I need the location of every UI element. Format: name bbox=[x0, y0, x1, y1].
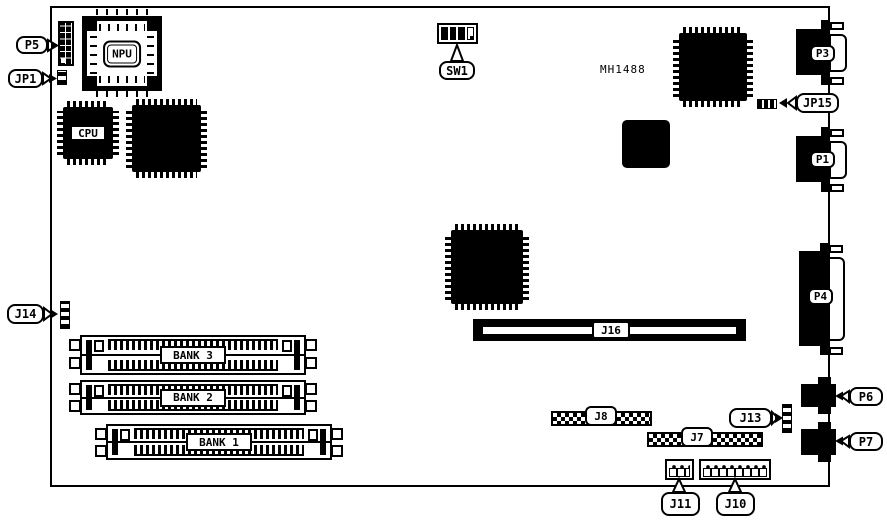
p7-callout: P7 bbox=[849, 432, 883, 451]
simm-clip bbox=[94, 340, 104, 352]
bank2-tab bbox=[305, 400, 317, 412]
p3-screw-tab bbox=[830, 22, 844, 30]
j14-callout: J14 bbox=[7, 304, 44, 324]
p5-power-connector bbox=[58, 21, 74, 66]
cpu-pins bbox=[112, 111, 119, 155]
bank3-tab bbox=[69, 357, 81, 369]
bank3-tab bbox=[69, 339, 81, 351]
jp15-callout: JP15 bbox=[796, 93, 839, 113]
jp15-jumper bbox=[757, 99, 777, 109]
bank2-label: BANK 2 bbox=[160, 389, 226, 407]
npu-corner-notch bbox=[87, 21, 97, 31]
sw1-callout: SW1 bbox=[439, 61, 475, 80]
chip-body bbox=[132, 105, 201, 172]
j14-header bbox=[60, 301, 70, 329]
npu-outer-ticks-top bbox=[96, 9, 148, 15]
npu-pin-ticks bbox=[99, 24, 145, 31]
p5-pin1-marker bbox=[61, 58, 66, 63]
chip-pins bbox=[200, 109, 207, 168]
bank1-tab bbox=[95, 445, 107, 457]
p6-arrowhead bbox=[835, 392, 843, 401]
sw1-switch-on bbox=[458, 27, 465, 40]
simm-clip bbox=[282, 385, 292, 397]
p7-jack bbox=[801, 429, 836, 455]
p1-screw-tab bbox=[830, 184, 844, 192]
j11-callout: J11 bbox=[661, 492, 700, 516]
p7-jack-stub bbox=[818, 422, 831, 430]
bank2-tab bbox=[69, 400, 81, 412]
chip-pins bbox=[136, 171, 197, 178]
p4-label: P4 bbox=[808, 288, 833, 305]
npu-outer-ticks-bottom bbox=[96, 91, 148, 97]
simm-end bbox=[86, 340, 92, 370]
p1-screw-nub bbox=[821, 182, 830, 192]
p3-screw-nub bbox=[821, 75, 830, 85]
chip-pins bbox=[455, 303, 519, 310]
p4-screw-tab bbox=[829, 245, 843, 253]
chip-pins bbox=[522, 234, 529, 300]
j10-connector bbox=[699, 459, 771, 480]
j7-label: J7 bbox=[681, 427, 713, 447]
simm-clip bbox=[308, 429, 318, 441]
p6-callout: P6 bbox=[849, 387, 883, 406]
p4-screw-nub bbox=[820, 345, 829, 355]
p3-label: P3 bbox=[810, 45, 835, 62]
npu-corner-notch bbox=[147, 76, 157, 86]
jp1-callout: JP1 bbox=[8, 69, 43, 88]
bank3-tab bbox=[305, 357, 317, 369]
bank3-label: BANK 3 bbox=[160, 346, 226, 364]
sw1-switch-on bbox=[450, 27, 457, 40]
p6-jack-stub bbox=[818, 406, 831, 414]
chip-body bbox=[451, 230, 523, 304]
npu-socket: NPU bbox=[82, 16, 162, 91]
p5-callout: P5 bbox=[16, 36, 48, 54]
p6-callout-tail bbox=[841, 391, 849, 402]
video-controller-chip bbox=[445, 224, 529, 310]
bank1-label: BANK 1 bbox=[186, 433, 252, 451]
bank3-simm-socket: BANK 3 bbox=[80, 335, 306, 375]
p1-screw-tab bbox=[830, 129, 844, 137]
p4-screw-tab bbox=[829, 347, 843, 355]
p3-screw-tab bbox=[830, 77, 844, 85]
chip-pins bbox=[746, 37, 753, 97]
cpu-label: CPU bbox=[70, 125, 106, 141]
bank2-tab bbox=[69, 383, 81, 395]
npu-pin-ticks bbox=[99, 76, 145, 83]
cpu-pins bbox=[67, 158, 109, 165]
cpu-chip: CPU bbox=[57, 101, 119, 165]
sw1-dip-switch bbox=[437, 23, 478, 44]
npu-corner-notch bbox=[147, 21, 157, 31]
simm-clip bbox=[282, 340, 292, 352]
j16-label: J16 bbox=[592, 321, 630, 339]
bank1-simm-socket: BANK 1 bbox=[106, 424, 332, 460]
sw1-switch-on bbox=[441, 27, 448, 40]
sw1-switch-off bbox=[467, 27, 474, 40]
plain-chip bbox=[622, 120, 670, 168]
j13-callout: J13 bbox=[729, 408, 772, 428]
j10-callout: J10 bbox=[716, 492, 755, 516]
bank3-tab bbox=[305, 339, 317, 351]
chip-body bbox=[679, 33, 747, 101]
npu-corner-notch bbox=[87, 76, 97, 86]
j11-sockets bbox=[669, 468, 690, 477]
j11-connector bbox=[665, 459, 694, 480]
simm-clip bbox=[94, 385, 104, 397]
p7-arrowhead bbox=[835, 437, 843, 446]
simm-end bbox=[320, 429, 326, 455]
npu-pin-ticks bbox=[90, 33, 97, 74]
mh1488-text: MH1488 bbox=[600, 63, 646, 76]
simm-end bbox=[112, 429, 118, 455]
p7-callout-tail bbox=[841, 436, 849, 447]
bank1-tab bbox=[331, 445, 343, 457]
chipset-chip-left bbox=[126, 99, 207, 178]
p6-jack-stub bbox=[818, 377, 831, 385]
j10-sockets bbox=[703, 468, 767, 477]
simm-end bbox=[86, 385, 92, 410]
bank2-tab bbox=[305, 383, 317, 395]
npu-pin-ticks bbox=[147, 33, 154, 74]
j8-label: J8 bbox=[585, 406, 617, 426]
bank2-simm-socket: BANK 2 bbox=[80, 380, 306, 415]
p7-jack-stub bbox=[818, 454, 831, 462]
chip-pins bbox=[683, 100, 743, 107]
simm-end bbox=[294, 385, 300, 410]
motherboard-diagram: NPU CPU MH1488 bbox=[0, 0, 887, 523]
simm-clip bbox=[120, 429, 130, 441]
npu-label-box: NPU bbox=[103, 40, 141, 67]
bank1-tab bbox=[95, 428, 107, 440]
jp1-jumper bbox=[57, 70, 67, 85]
p1-label: P1 bbox=[810, 151, 835, 168]
j13-header bbox=[782, 404, 792, 433]
bank1-tab bbox=[331, 428, 343, 440]
simm-end bbox=[294, 340, 300, 370]
io-controller-chip bbox=[673, 27, 753, 107]
p6-jack bbox=[801, 384, 836, 407]
npu-label: NPU bbox=[107, 44, 137, 63]
